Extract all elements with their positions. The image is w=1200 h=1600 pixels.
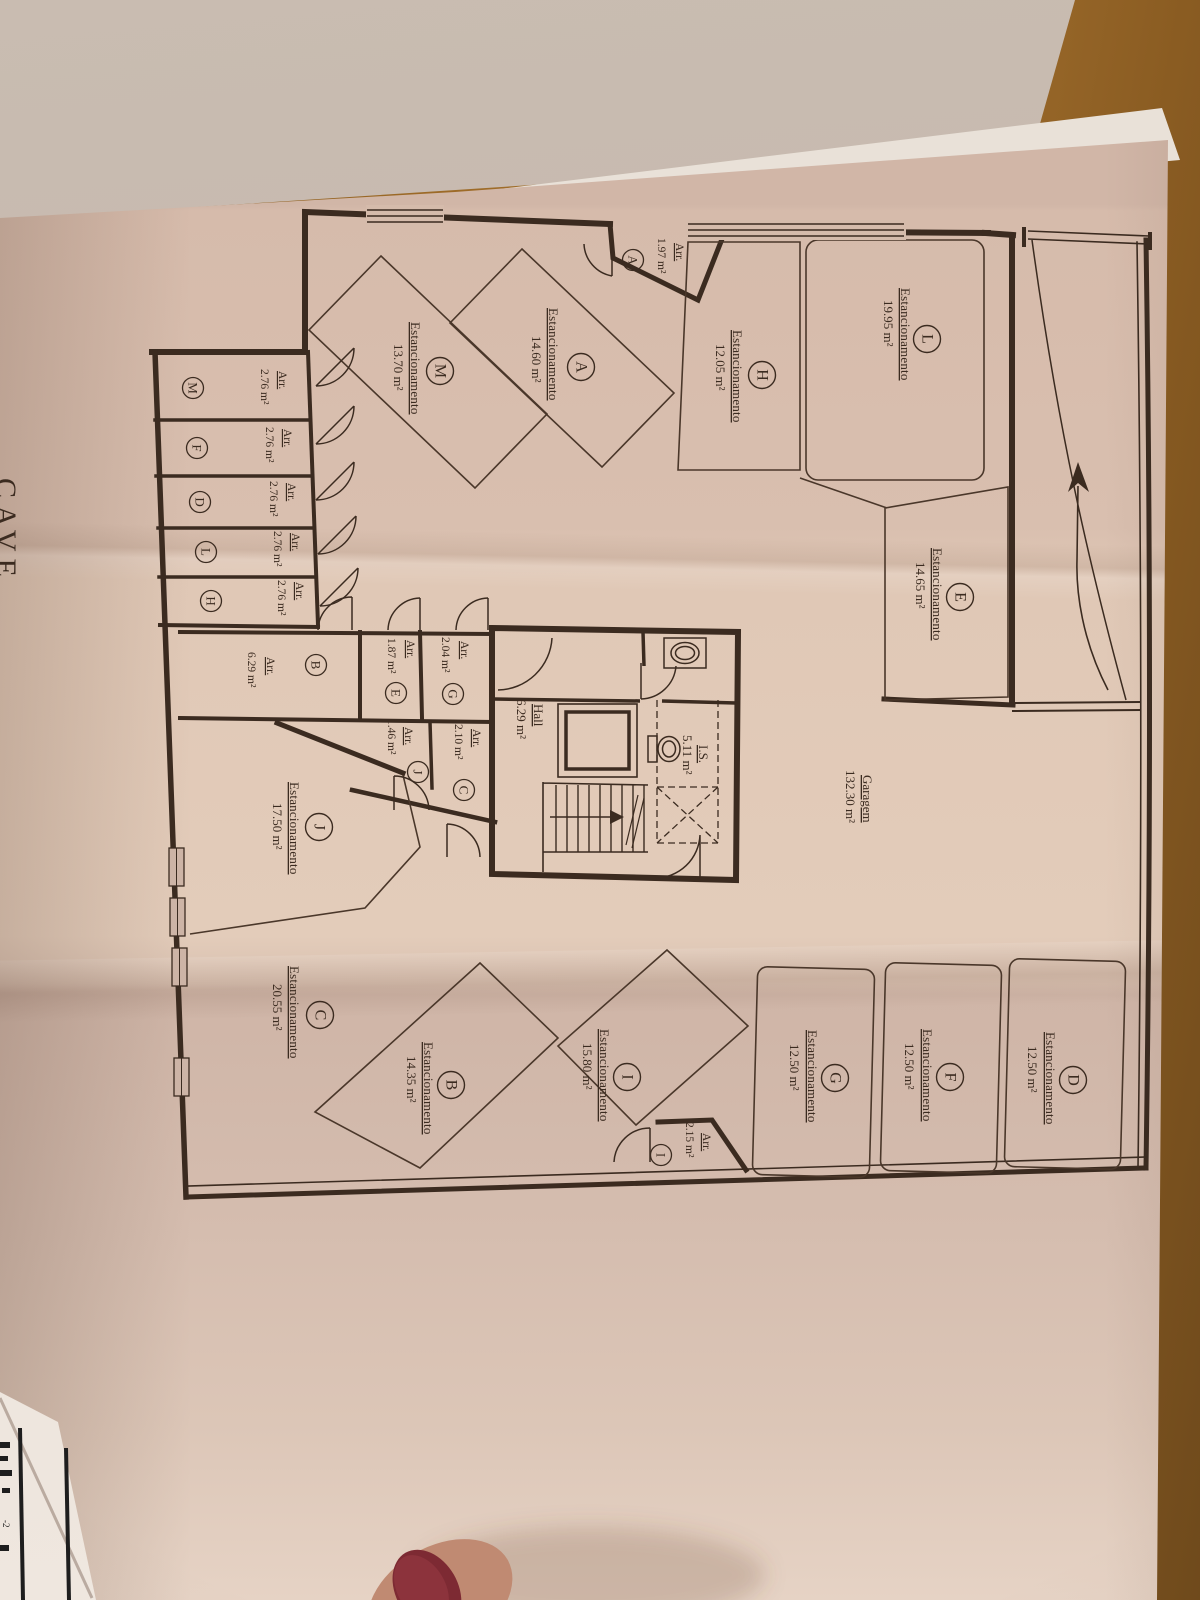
garage-area: 132.30 m² bbox=[843, 770, 858, 823]
svg-text:B: B bbox=[443, 1080, 460, 1091]
elevator bbox=[558, 704, 637, 777]
photo-of-floor-plan: { "floor": { "title": "CAVE", "sheet_not… bbox=[0, 0, 1200, 1600]
svg-text:12.50 m²: 12.50 m² bbox=[1025, 1046, 1040, 1093]
svg-text:M: M bbox=[186, 382, 201, 394]
hall-label: Hall bbox=[531, 704, 546, 727]
svg-text:F: F bbox=[190, 444, 205, 451]
svg-text:2.76 m²: 2.76 m² bbox=[275, 580, 287, 616]
svg-text:2.10 m²: 2.10 m² bbox=[452, 724, 464, 760]
parking-space-C: Estancionamento 20.55 m² C bbox=[270, 966, 334, 1059]
wc-area: 5.11 m² bbox=[680, 735, 695, 775]
svg-text:Estancionamento: Estancionamento bbox=[287, 782, 302, 875]
svg-text:D: D bbox=[1065, 1074, 1082, 1086]
svg-text:Estancionamento: Estancionamento bbox=[1043, 1032, 1058, 1125]
svg-text:Arr.: Arr. bbox=[285, 483, 297, 501]
svg-text:C: C bbox=[457, 786, 472, 795]
parking-space-B: Estancionamento 14.35 m² B bbox=[404, 1042, 465, 1135]
sheet-note: -2 bbox=[1, 1520, 11, 1528]
parking-space-I: Estancionamento 15.80 m² I bbox=[580, 1029, 641, 1122]
door-storage-E bbox=[388, 598, 420, 630]
svg-text:Arr.: Arr. bbox=[264, 657, 276, 675]
svg-text:Arr.: Arr. bbox=[402, 727, 414, 745]
svg-text:C: C bbox=[312, 1010, 329, 1021]
parking-space-A: Estancionamento 14.60 m² A bbox=[529, 308, 595, 401]
svg-text:F: F bbox=[942, 1073, 959, 1082]
svg-text:Arr.: Arr. bbox=[458, 641, 470, 659]
svg-text:L: L bbox=[919, 334, 936, 344]
svg-text:12.05 m²: 12.05 m² bbox=[713, 344, 728, 391]
misc-labels: Garagem 132.30 m² Hall 6.29 m² I.S. 5.11… bbox=[0, 478, 875, 823]
svg-text:13.70 m²: 13.70 m² bbox=[391, 344, 406, 391]
svg-text:14.35 m²: 14.35 m² bbox=[404, 1056, 419, 1103]
bay-L bbox=[806, 240, 984, 480]
stairs-break-mark bbox=[626, 795, 644, 848]
parking-space-D: Estancionamento 12.50 m² D bbox=[1025, 1032, 1087, 1125]
svg-text:Estancionamento: Estancionamento bbox=[287, 966, 302, 1059]
toilet-tank bbox=[648, 736, 657, 762]
svg-text:6.29 m²: 6.29 m² bbox=[245, 652, 257, 688]
storage-room-G: Arr. 2.04 m² G bbox=[439, 637, 470, 705]
floor-plan-drawing: Estancionamento 19.95 m² L Estancionamen… bbox=[0, 0, 1200, 1600]
hall-area: 6.29 m² bbox=[514, 699, 529, 739]
door-storage-C bbox=[447, 824, 480, 857]
svg-text:H: H bbox=[204, 596, 219, 605]
svg-text:Arr.: Arr. bbox=[289, 533, 301, 551]
svg-text:Arr.: Arr. bbox=[404, 640, 416, 658]
svg-text:2.76 m²: 2.76 m² bbox=[263, 427, 275, 463]
garage-gate bbox=[1028, 231, 1149, 244]
parking-space-F: Estancionamento 12.50 m² F bbox=[902, 1029, 964, 1122]
storage-room-D: Arr. 2.76 m² D bbox=[190, 481, 298, 517]
svg-text:Estancionamento: Estancionamento bbox=[805, 1030, 820, 1123]
svg-text:G: G bbox=[827, 1072, 844, 1084]
svg-text:E: E bbox=[389, 689, 404, 697]
svg-text:1.87 m²: 1.87 m² bbox=[385, 638, 397, 674]
svg-text:Estancionamento: Estancionamento bbox=[597, 1029, 612, 1122]
bay-I bbox=[558, 950, 748, 1125]
svg-text:H: H bbox=[754, 369, 771, 381]
svg-text:1.97 m²: 1.97 m² bbox=[655, 238, 667, 274]
svg-text:Arr.: Arr. bbox=[470, 729, 482, 747]
storage-room-E: Arr. 1.87 m² E bbox=[385, 638, 416, 704]
garage-label: Garagem bbox=[860, 775, 875, 823]
svg-text:A: A bbox=[626, 255, 641, 265]
svg-text:Estancionamento: Estancionamento bbox=[930, 548, 945, 641]
svg-text:15.80 m²: 15.80 m² bbox=[580, 1043, 595, 1090]
svg-text:12.50 m²: 12.50 m² bbox=[902, 1043, 917, 1090]
ramp-threshold bbox=[1013, 702, 1140, 711]
storage-room-C: Arr. 2.10 m² C bbox=[452, 724, 482, 801]
storage-room-L: Arr. 2.76 m² L bbox=[196, 531, 302, 567]
storage-strip-wall bbox=[308, 352, 318, 625]
wc-label: I.S. bbox=[696, 745, 711, 763]
svg-text:J: J bbox=[411, 769, 426, 774]
svg-text:2.04 m²: 2.04 m² bbox=[439, 637, 451, 673]
title-block-edge: -2 bbox=[0, 1398, 92, 1600]
svg-text:B: B bbox=[309, 661, 324, 670]
bay-A bbox=[450, 249, 674, 467]
windows bbox=[169, 205, 1150, 1096]
door-arcs bbox=[316, 242, 700, 1162]
bay-F bbox=[880, 963, 1001, 1174]
svg-text:Estancionamento: Estancionamento bbox=[408, 322, 423, 415]
svg-text:Estancionamento: Estancionamento bbox=[920, 1029, 935, 1122]
storage-room-J: Arr. 1.46 m² J bbox=[385, 719, 429, 783]
parking-space-L: Estancionamento 19.95 m² L bbox=[881, 288, 941, 381]
svg-text:Arr.: Arr. bbox=[281, 429, 293, 447]
parking-space-H: Estancionamento 12.05 m² H bbox=[713, 330, 776, 423]
svg-text:E: E bbox=[952, 592, 969, 602]
parking-space-G: Estancionamento 12.50 m² G bbox=[787, 1030, 849, 1123]
svg-text:14.60 m²: 14.60 m² bbox=[529, 336, 544, 383]
svg-text:J: J bbox=[311, 824, 328, 830]
svg-text:D: D bbox=[193, 497, 208, 506]
svg-text:Arr.: Arr. bbox=[700, 1133, 712, 1151]
garage-boundary-line bbox=[800, 478, 887, 508]
svg-text:19.95 m²: 19.95 m² bbox=[881, 300, 896, 347]
svg-text:I: I bbox=[654, 1153, 669, 1157]
storage-room-H: Arr. 2.76 m² H bbox=[201, 580, 306, 616]
svg-text:Arr.: Arr. bbox=[673, 243, 685, 261]
storage-room-M: Arr. 2.76 m² M bbox=[183, 369, 289, 405]
parking-bays bbox=[190, 240, 1126, 1178]
floor-title: CAVE bbox=[0, 478, 22, 584]
svg-text:2.76 m²: 2.76 m² bbox=[258, 369, 270, 405]
parking-labels: Estancionamento 19.95 m² L Estancionamen… bbox=[270, 288, 1087, 1135]
ramp-arrow-line bbox=[1077, 486, 1108, 690]
door-storage-A bbox=[584, 242, 612, 276]
svg-text:G: G bbox=[446, 689, 461, 698]
svg-text:14.65 m²: 14.65 m² bbox=[913, 562, 928, 609]
svg-text:I: I bbox=[619, 1074, 636, 1079]
svg-text:20.55 m²: 20.55 m² bbox=[270, 984, 285, 1031]
svg-text:Arr.: Arr. bbox=[293, 582, 305, 600]
right-outer-wall bbox=[1146, 240, 1150, 1168]
storage-room-F: Arr. 2.76 m² F bbox=[187, 427, 294, 463]
svg-text:2.76 m²: 2.76 m² bbox=[271, 531, 283, 567]
door-core-south bbox=[655, 835, 700, 878]
stairs bbox=[543, 785, 648, 852]
svg-text:Arr.: Arr. bbox=[276, 371, 288, 389]
svg-text:Estancionamento: Estancionamento bbox=[730, 330, 745, 423]
door-storage-G bbox=[456, 598, 488, 630]
svg-text:Estancionamento: Estancionamento bbox=[421, 1042, 436, 1135]
svg-text:12.50 m²: 12.50 m² bbox=[787, 1044, 802, 1091]
svg-text:2.76 m²: 2.76 m² bbox=[267, 481, 279, 517]
svg-text:2.15 m²: 2.15 m² bbox=[683, 1122, 695, 1158]
parking-space-E: Estancionamento 14.65 m² E bbox=[913, 548, 974, 641]
svg-text:M: M bbox=[432, 364, 449, 378]
svg-text:1.46 m²: 1.46 m² bbox=[385, 719, 397, 755]
svg-text:Estancionamento: Estancionamento bbox=[898, 288, 913, 381]
bay-D bbox=[1004, 959, 1125, 1170]
storage-room-B: Arr. 6.29 m² B bbox=[245, 652, 327, 688]
fingertip bbox=[344, 1510, 765, 1600]
storage-room-I: Arr. 2.15 m² I bbox=[651, 1122, 713, 1166]
svg-text:L: L bbox=[199, 548, 214, 556]
door-hall bbox=[498, 638, 552, 690]
svg-text:A: A bbox=[573, 361, 590, 373]
door-storage-I bbox=[614, 1128, 650, 1162]
svg-text:17.50 m²: 17.50 m² bbox=[270, 803, 285, 850]
parking-space-M: Estancionamento 13.70 m² M bbox=[391, 322, 454, 415]
svg-text:Estancionamento: Estancionamento bbox=[546, 308, 561, 401]
parking-space-J: Estancionamento 17.50 m² J bbox=[270, 782, 333, 875]
